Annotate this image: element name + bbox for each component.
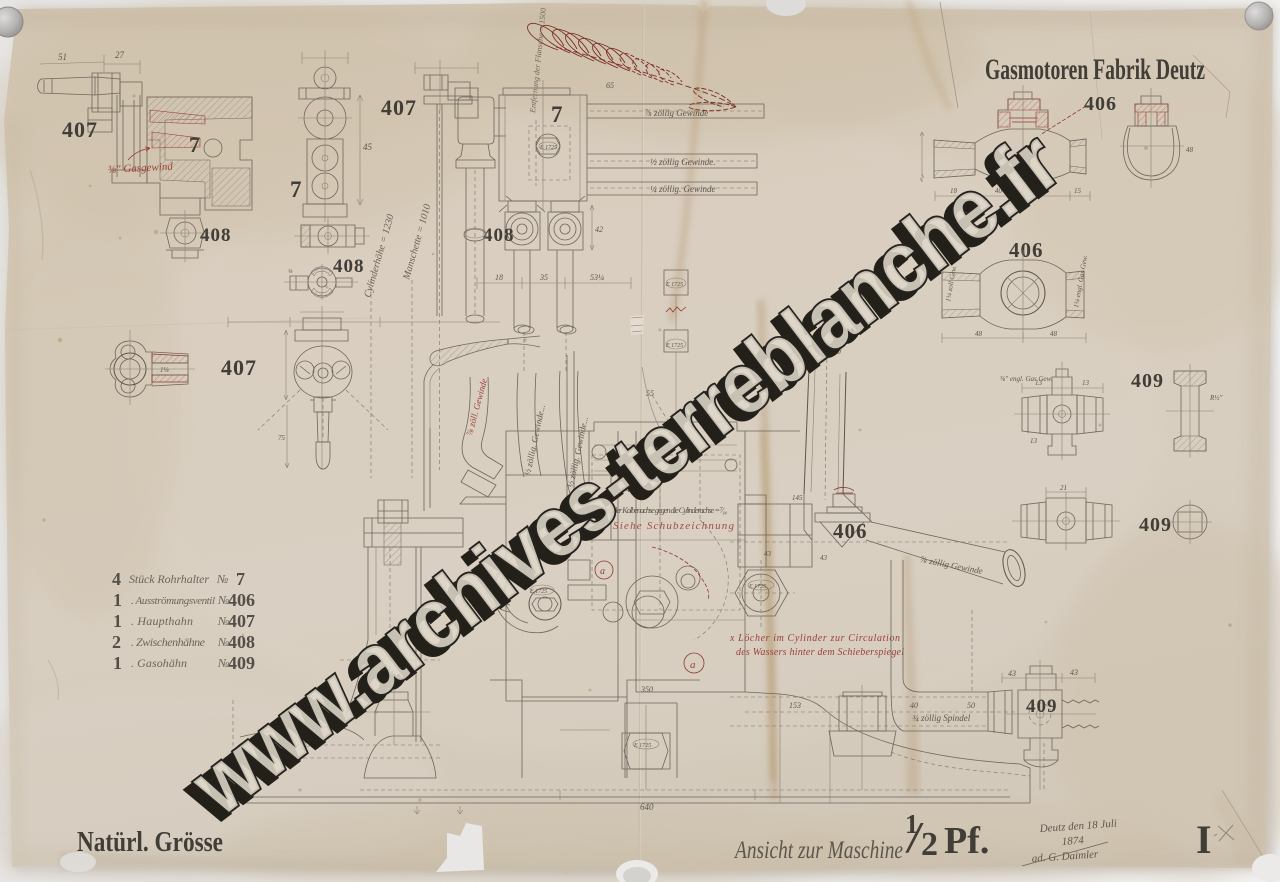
svg-text:Pf.: Pf. <box>944 820 989 862</box>
svg-text:1: 1 <box>113 590 122 610</box>
svg-text:48: 48 <box>1050 330 1058 338</box>
svg-text:1: 1 <box>113 653 122 673</box>
svg-text:4: 4 <box>112 569 121 589</box>
svg-text:E 1725: E 1725 <box>665 343 683 349</box>
svg-text:409: 409 <box>1139 514 1172 536</box>
svg-text:7: 7 <box>189 132 200 157</box>
svg-text:⅜″ engl. Gas Gew.: ⅜″ engl. Gas Gew. <box>1000 375 1053 383</box>
svg-text:E 1725: E 1725 <box>633 743 651 749</box>
svg-text:13: 13 <box>1030 437 1038 445</box>
svg-text:2: 2 <box>921 826 938 863</box>
svg-text:Stück Rohrhalter: Stück Rohrhalter <box>129 572 209 586</box>
svg-text:350: 350 <box>640 685 653 694</box>
svg-text:409: 409 <box>1026 696 1058 717</box>
svg-text:1⅛: 1⅛ <box>160 366 170 374</box>
svg-text:⅜: ⅜ <box>288 269 293 275</box>
svg-text:I: I <box>1196 817 1212 862</box>
svg-text:E 1725: E 1725 <box>539 145 557 151</box>
svg-text:43: 43 <box>764 550 772 558</box>
svg-text:153: 153 <box>789 701 801 710</box>
svg-text:x Löcher im Cylinder zur Circu: x Löcher im Cylinder zur Circulation <box>729 633 900 644</box>
svg-text:65: 65 <box>606 81 614 90</box>
svg-text:406: 406 <box>833 519 868 543</box>
svg-text:43: 43 <box>1008 669 1016 678</box>
svg-text:R½″: R½″ <box>1209 394 1223 402</box>
svg-text:1: 1 <box>113 611 122 631</box>
svg-text:640: 640 <box>640 802 654 812</box>
svg-text:409: 409 <box>1131 370 1164 392</box>
svg-text:E 1725: E 1725 <box>748 584 766 590</box>
svg-text:7: 7 <box>236 569 245 589</box>
svg-text:406: 406 <box>1009 238 1044 262</box>
svg-text:№: № <box>216 572 228 586</box>
svg-text:. Gasohähn: . Gasohähn <box>131 656 187 670</box>
svg-text:408: 408 <box>200 225 232 246</box>
svg-text:¼ zöllig. Gewinde: ¼ zöllig. Gewinde <box>650 184 716 194</box>
svg-text:40: 40 <box>910 701 918 710</box>
svg-text:408: 408 <box>228 632 255 652</box>
svg-text:7: 7 <box>551 102 563 127</box>
svg-text:. Haupthahn: . Haupthahn <box>131 614 193 628</box>
svg-text:E 1725: E 1725 <box>665 282 683 288</box>
svg-text:13: 13 <box>1082 379 1090 387</box>
svg-text:51: 51 <box>58 52 67 62</box>
svg-text:407: 407 <box>228 611 255 631</box>
svg-text:408: 408 <box>483 225 515 246</box>
svg-text:407: 407 <box>62 117 98 142</box>
svg-text:Ansicht zur Maschine: Ansicht zur Maschine <box>733 837 903 864</box>
svg-text:406: 406 <box>228 590 255 610</box>
svg-text:48: 48 <box>975 330 983 338</box>
svg-text:21: 21 <box>1060 484 1067 492</box>
svg-text:a: a <box>690 659 696 671</box>
svg-text:35: 35 <box>539 273 548 282</box>
svg-text:48: 48 <box>1186 146 1194 154</box>
svg-text:407: 407 <box>221 355 257 380</box>
svg-text:1874: 1874 <box>1061 834 1084 848</box>
svg-text:18: 18 <box>495 273 503 282</box>
svg-text:. Zwischenhähne: . Zwischenhähne <box>131 635 206 649</box>
svg-text:408: 408 <box>333 256 365 277</box>
svg-text:a: a <box>600 566 605 577</box>
svg-text:45: 45 <box>363 142 373 152</box>
svg-text:43: 43 <box>1070 668 1078 677</box>
svg-text:50: 50 <box>967 701 975 710</box>
svg-text:43: 43 <box>820 554 828 562</box>
svg-text:409: 409 <box>228 653 255 673</box>
svg-text:145: 145 <box>792 494 803 502</box>
svg-text:42: 42 <box>595 225 603 234</box>
svg-text:. Ausströmungsventil: . Ausströmungsventil <box>131 595 215 607</box>
svg-text:407: 407 <box>381 95 417 120</box>
svg-text:¾ zöllig Spindel: ¾ zöllig Spindel <box>912 713 971 723</box>
svg-text:27: 27 <box>115 50 125 60</box>
svg-text:des Wassers hinter dem Schiebe: des Wassers hinter dem Schieberspiegel <box>736 647 904 658</box>
svg-text:⅞ zöllig Gewinde: ⅞ zöllig Gewinde <box>645 108 708 118</box>
svg-text:Natürl. Grösse: Natürl. Grösse <box>77 826 223 858</box>
svg-text:75: 75 <box>278 434 286 442</box>
svg-text:7: 7 <box>290 177 302 202</box>
svg-text:53¼: 53¼ <box>590 273 604 282</box>
svg-text:½ zöllig Gewinde.: ½ zöllig Gewinde. <box>650 157 716 167</box>
svg-text:2: 2 <box>112 632 121 652</box>
svg-text:Gasmotoren Fabrik Deutz: Gasmotoren Fabrik Deutz <box>985 53 1205 86</box>
svg-text:406: 406 <box>1084 93 1117 115</box>
